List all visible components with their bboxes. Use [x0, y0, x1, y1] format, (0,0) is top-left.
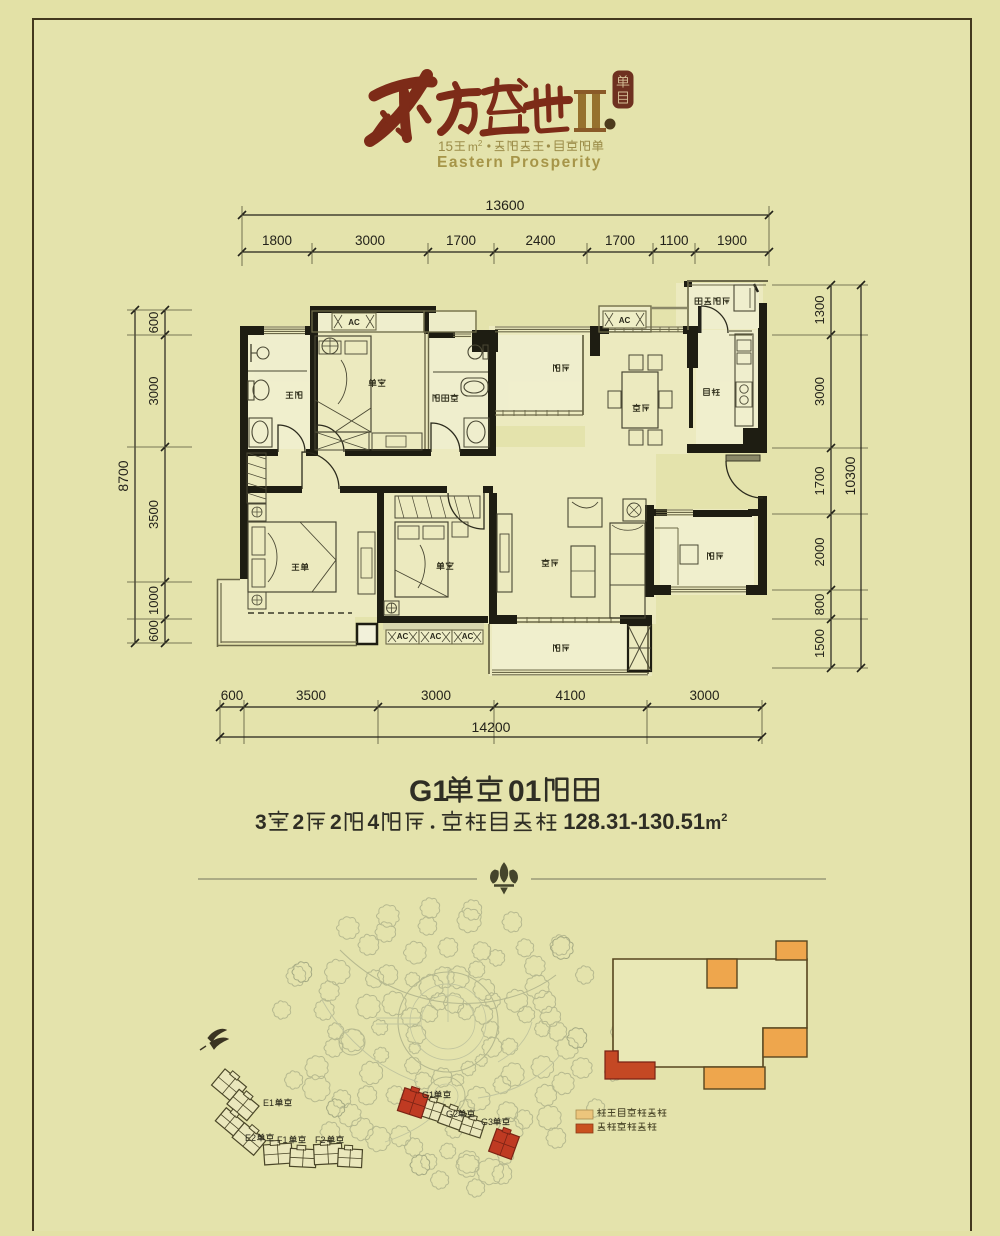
- svg-text:F2: F2: [315, 1135, 326, 1145]
- svg-text:E2: E2: [245, 1133, 256, 1143]
- svg-text:600: 600: [146, 312, 161, 334]
- svg-text:3: 3: [255, 811, 267, 834]
- svg-text:3500: 3500: [296, 688, 326, 703]
- svg-text:14200: 14200: [472, 719, 511, 735]
- svg-text:AC: AC: [462, 632, 474, 641]
- svg-text:1700: 1700: [812, 467, 827, 496]
- svg-text:m: m: [468, 140, 478, 154]
- svg-text:Eastern Prosperity: Eastern Prosperity: [437, 154, 602, 171]
- svg-text:600: 600: [221, 688, 244, 703]
- svg-text:2000: 2000: [812, 538, 827, 567]
- svg-text:1100: 1100: [659, 233, 688, 248]
- svg-text:3500: 3500: [146, 500, 161, 529]
- svg-text:2: 2: [721, 812, 727, 824]
- svg-text:1900: 1900: [717, 233, 747, 248]
- svg-text:13600: 13600: [486, 197, 525, 213]
- svg-text:1000: 1000: [146, 586, 161, 615]
- svg-text:3000: 3000: [812, 377, 827, 406]
- svg-text:3000: 3000: [689, 688, 719, 703]
- svg-text:2: 2: [293, 811, 305, 834]
- svg-text:3000: 3000: [146, 377, 161, 406]
- svg-text:AC: AC: [619, 316, 631, 325]
- svg-text:3000: 3000: [355, 233, 385, 248]
- svg-text:1700: 1700: [446, 233, 476, 248]
- svg-text:8700: 8700: [115, 460, 131, 491]
- svg-text:G2: G2: [446, 1109, 458, 1119]
- svg-text:128.31-130.51: 128.31-130.51: [563, 809, 705, 834]
- svg-text:1700: 1700: [605, 233, 635, 248]
- svg-text:2: 2: [330, 811, 342, 834]
- svg-text:1300: 1300: [812, 296, 827, 325]
- svg-text:4100: 4100: [555, 688, 585, 703]
- svg-text:2400: 2400: [525, 233, 555, 248]
- svg-text:AC: AC: [430, 632, 442, 641]
- svg-text:2: 2: [478, 139, 483, 148]
- svg-text:10300: 10300: [842, 456, 858, 495]
- svg-text:G1: G1: [422, 1090, 434, 1100]
- svg-text:4: 4: [368, 811, 380, 834]
- svg-text:15: 15: [438, 139, 453, 154]
- svg-text:m: m: [705, 813, 721, 833]
- svg-text:F1: F1: [277, 1135, 288, 1145]
- svg-text:AC: AC: [348, 318, 360, 327]
- svg-text:G1: G1: [409, 775, 449, 808]
- svg-text:3000: 3000: [421, 688, 451, 703]
- svg-text:1800: 1800: [262, 233, 292, 248]
- svg-text:E1: E1: [263, 1098, 274, 1108]
- svg-text:800: 800: [812, 594, 827, 616]
- svg-text:01: 01: [508, 775, 541, 808]
- svg-text:600: 600: [146, 620, 161, 642]
- svg-text:AC: AC: [397, 632, 409, 641]
- svg-text:1500: 1500: [812, 629, 827, 658]
- svg-text:G3: G3: [481, 1117, 493, 1127]
